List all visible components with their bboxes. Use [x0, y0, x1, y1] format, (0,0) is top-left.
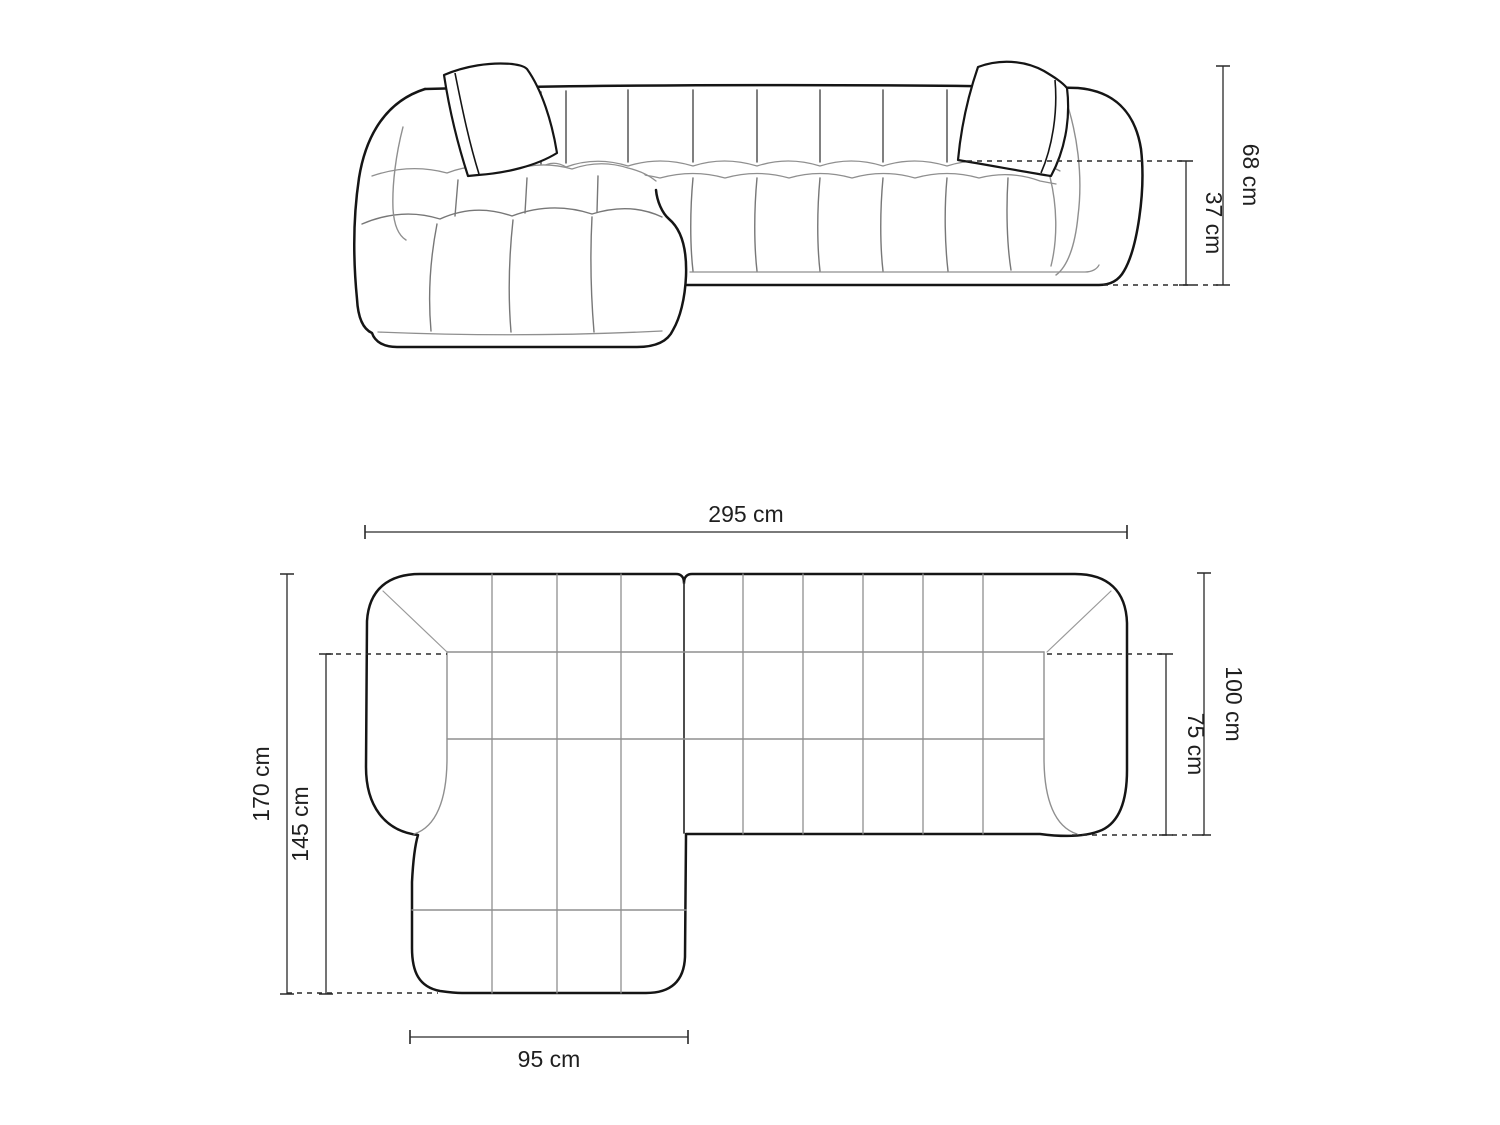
- plan-outline: [366, 574, 1127, 993]
- dim-seat-height-label: 37 cm: [1201, 192, 1227, 255]
- dim-total-width-label: 295 cm: [708, 501, 783, 527]
- left-pillow: [444, 63, 557, 176]
- seat-separation: [755, 178, 757, 271]
- dim-total-height-label: 68 cm: [1238, 144, 1264, 207]
- dim-chaise-depth-label: 145 cm: [287, 786, 313, 861]
- right-pillow: [958, 62, 1068, 176]
- pillows: [444, 62, 1068, 176]
- plan-view: 295 cm 170 cm 145 cm 100 cm 75 cm 95 cm: [248, 501, 1247, 1072]
- seat-front-scallop-line: [600, 174, 1056, 185]
- seat-separation: [945, 178, 948, 271]
- dim-body-depth-label: 100 cm: [1221, 666, 1247, 741]
- sofa-dimension-diagram: 68 cm 37 cm: [0, 0, 1500, 1125]
- dim-seat-depth-label: 75 cm: [1183, 713, 1209, 776]
- chaise-tuft-separation: [597, 176, 598, 212]
- seat-separation: [881, 178, 883, 271]
- front-view: 68 cm 37 cm: [354, 62, 1264, 347]
- seat-front-bottom-line: [690, 265, 1099, 272]
- back-channel-seams: [541, 90, 947, 164]
- chaise-body-fill: [354, 164, 686, 347]
- seat-separation: [691, 178, 693, 271]
- front-seat-separations: [691, 178, 1011, 271]
- dim-chaise-width-label: 95 cm: [518, 1046, 581, 1072]
- seat-separation: [818, 178, 820, 271]
- seat-separation: [1007, 178, 1011, 270]
- right-arm-front-line: [1050, 177, 1056, 266]
- dim-total-depth-label: 170 cm: [248, 746, 274, 821]
